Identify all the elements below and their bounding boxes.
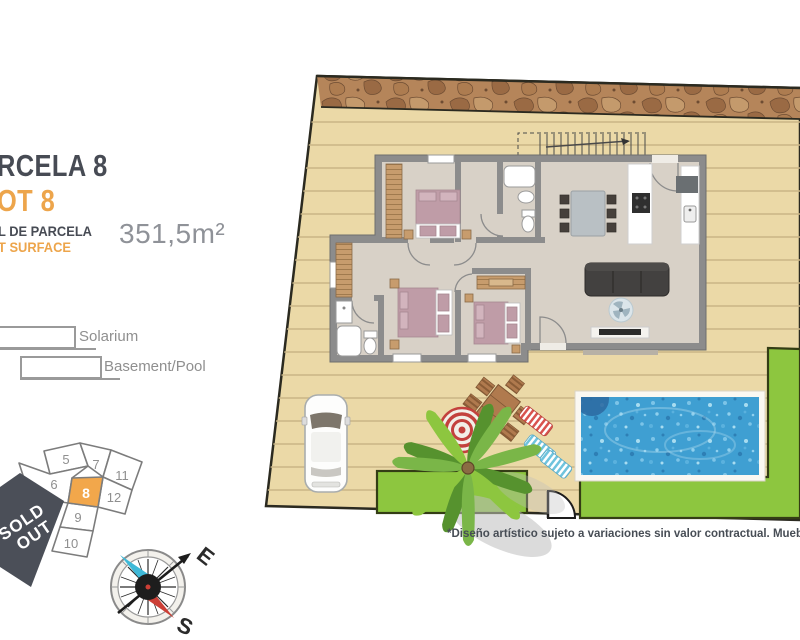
compass-south-label: S (173, 612, 197, 640)
legend-swatch-solarium (0, 326, 76, 349)
lot-label: 10 (64, 536, 78, 551)
disclaimer-text: *Diseño artístico sujeto a variaciones s… (447, 528, 800, 540)
dining-table (560, 191, 616, 236)
legend-underline (20, 378, 120, 380)
lot-label: 5 (62, 452, 69, 467)
fridge (676, 176, 698, 193)
tv-console (591, 327, 649, 338)
legend-swatch-basement-pool (20, 356, 102, 379)
lot-label: 9 (74, 510, 81, 525)
title-plot: OT 8 (0, 185, 55, 216)
legend-underline (0, 348, 96, 350)
lot-label: 6 (50, 477, 57, 492)
title-parcela: RCELA 8 (0, 150, 108, 181)
compass-east-label: E (192, 542, 219, 571)
brochure-graphic: 5 7 11 6 8 12 9 10 SOLD OUT (0, 0, 800, 640)
surface-label-es: L DE PARCELA (0, 223, 92, 239)
pool (575, 382, 765, 481)
lot-label: 11 (115, 468, 129, 483)
surface-value: 351,5m² (119, 218, 225, 250)
compass: E S (111, 542, 219, 640)
car (302, 395, 350, 492)
lot-label: 7 (92, 457, 99, 472)
stove (632, 193, 650, 213)
porch-step (583, 350, 658, 355)
ceiling-fan (609, 298, 633, 322)
lot-label-highlighted: 8 (82, 485, 90, 501)
legend-label-basement-pool: Basement/Pool (104, 358, 206, 375)
kitchen-sink (684, 206, 696, 222)
legend-label-solarium: Solarium (79, 328, 138, 345)
sofa (585, 263, 669, 296)
surface-label-en: T SURFACE (0, 239, 71, 255)
house-floorplan (330, 155, 706, 362)
lot-label: 12 (107, 490, 121, 505)
